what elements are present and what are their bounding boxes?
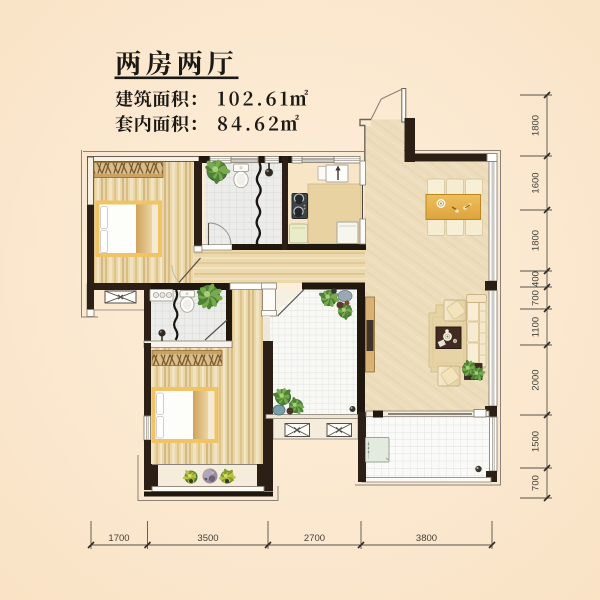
svg-text:2700: 2700 [304,533,325,544]
svg-text:1700: 1700 [108,533,129,544]
svg-text:1800: 1800 [531,115,542,136]
svg-text:3800: 3800 [416,533,437,544]
svg-text:700: 700 [531,475,542,491]
svg-text:2000: 2000 [531,369,542,390]
svg-text:400: 400 [531,271,542,287]
svg-text:1600: 1600 [531,172,542,193]
svg-text:3500: 3500 [197,533,218,544]
svg-text:1100: 1100 [531,317,542,337]
svg-text:1500: 1500 [531,431,542,452]
svg-text:1800: 1800 [531,230,542,251]
svg-text:700: 700 [531,290,542,306]
